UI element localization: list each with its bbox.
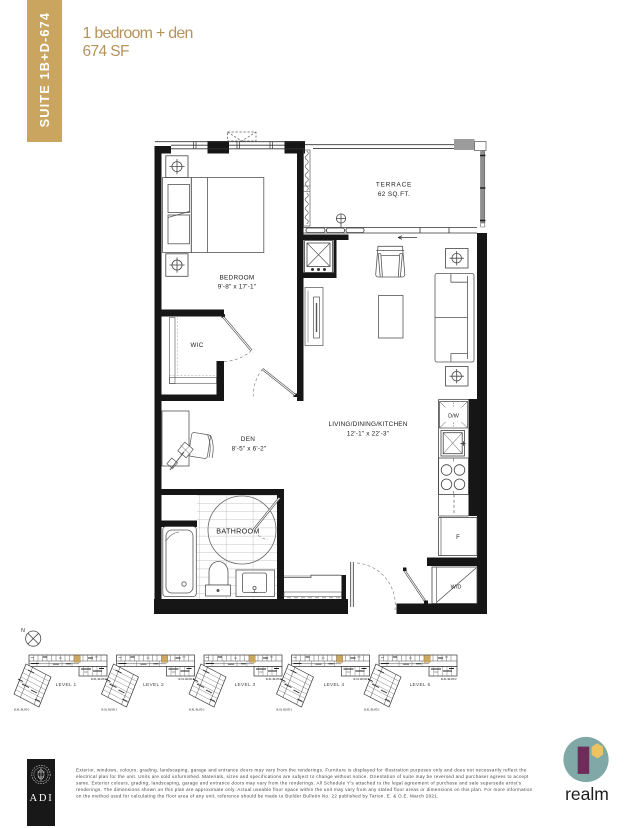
svg-text:LEVEL 1: LEVEL 1 [56,682,77,688]
svg-text:LEVEL 2: LEVEL 2 [143,682,164,688]
svg-text:LEVEL 5: LEVEL 5 [410,682,431,688]
svg-text:D/W: D/W [448,414,460,420]
svg-text:WIC: WIC [191,342,204,349]
svg-text:12'-1" x 22'-3": 12'-1" x 22'-3" [347,431,389,438]
svg-text:F: F [456,534,460,541]
svg-text:DEN: DEN [241,436,255,443]
svg-text:N: N [21,628,25,634]
svg-text:LEVEL 4: LEVEL 4 [324,682,345,688]
svg-text:8'-5" x 6'-2": 8'-5" x 6'-2" [232,446,267,453]
svg-text:9'-8" x 17'-1": 9'-8" x 17'-1" [218,284,257,291]
svg-text:BATHROOM: BATHROOM [216,527,259,536]
svg-text:BEDROOM: BEDROOM [219,275,254,282]
svg-text:62 SQ.FT.: 62 SQ.FT. [378,191,410,198]
svg-text:TERRACE: TERRACE [376,182,412,189]
svg-text:ADI: ADI [29,793,53,804]
svg-text:LEVEL 3: LEVEL 3 [235,682,256,688]
svg-text:W/D: W/D [451,585,462,591]
svg-text:LIVING/DINING/KITCHEN: LIVING/DINING/KITCHEN [328,421,407,428]
